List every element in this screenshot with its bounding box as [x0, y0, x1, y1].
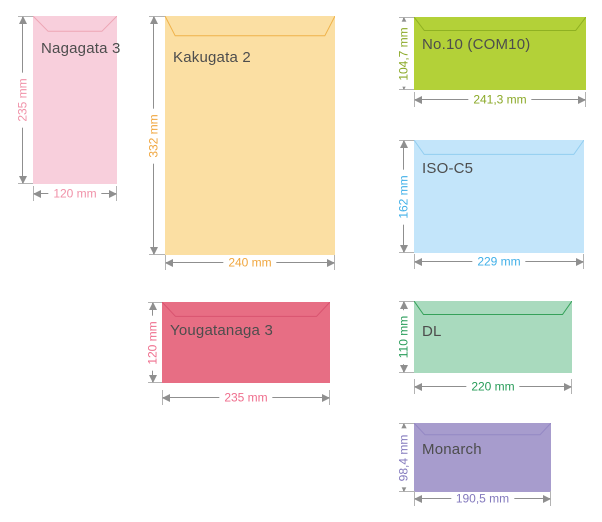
height-label: 235 mm — [16, 72, 29, 127]
flap-outline-icon — [165, 16, 335, 38]
envelope-name: ISO-C5 — [422, 160, 473, 177]
envelope-yougatanaga-3: Yougatanaga 3 — [162, 302, 330, 383]
arrow-left-icon — [414, 96, 422, 104]
envelope-size-diagram: { "diagram": { "subject": "Envelope size… — [0, 0, 602, 522]
envelope-iso-c5: ISO-C5 — [414, 140, 584, 253]
flap-outline-icon — [414, 140, 584, 156]
arrow-right-icon — [576, 258, 584, 266]
arrow-down-icon — [400, 365, 408, 373]
width-dimension-arrow: 240 mm — [165, 262, 335, 263]
width-label: 120 mm — [48, 187, 101, 200]
arrow-up-icon — [150, 16, 158, 24]
width-label: 220 mm — [466, 380, 519, 393]
height-label: 162 mm — [397, 169, 410, 224]
height-dimension-arrow: 120 mm — [152, 302, 153, 383]
envelope-kakugata-2: Kakugata 2 — [165, 16, 335, 255]
flap-outline-icon — [414, 301, 572, 316]
flap-outline-icon — [414, 17, 586, 32]
arrow-left-icon — [33, 190, 41, 198]
width-label: 241,3 mm — [468, 93, 531, 106]
arrow-left-icon — [414, 258, 422, 266]
flap-outline-icon — [414, 423, 551, 436]
height-dimension-arrow: 332 mm — [153, 16, 154, 255]
arrow-left-icon — [414, 383, 422, 391]
arrow-right-icon — [109, 190, 117, 198]
height-label: 332 mm — [147, 108, 160, 163]
envelope-name: Kakugata 2 — [173, 49, 251, 66]
height-dimension-arrow: 162 mm — [403, 140, 404, 253]
arrow-right-icon — [578, 96, 586, 104]
height-dimension-arrow: 98,4 mm — [403, 423, 404, 492]
arrow-left-icon — [162, 394, 170, 402]
envelope-nagagata-3: Nagagata 3 — [33, 16, 117, 184]
arrow-down-icon — [19, 176, 27, 184]
arrow-down-icon — [149, 375, 157, 383]
arrow-right-icon — [327, 259, 335, 267]
height-label: 98,4 mm — [397, 428, 410, 487]
arrow-left-icon — [165, 259, 173, 267]
width-label: 240 mm — [223, 256, 276, 269]
width-label: 190,5 mm — [451, 492, 514, 505]
arrow-down-icon — [150, 247, 158, 255]
flap-outline-icon — [33, 16, 117, 33]
envelope-name: DL — [422, 323, 442, 340]
height-label: 120 mm — [146, 315, 159, 370]
width-dimension-arrow: 120 mm — [33, 193, 117, 194]
arrow-up-icon — [149, 302, 157, 310]
width-dimension-arrow: 229 mm — [414, 261, 584, 262]
height-dimension-arrow: 110 mm — [403, 301, 404, 373]
width-dimension-arrow: 190,5 mm — [414, 498, 551, 499]
envelope-no10-com10: No.10 (COM10) — [414, 17, 586, 90]
width-label: 229 mm — [472, 255, 525, 268]
height-label: 104,7 mm — [397, 21, 410, 86]
width-dimension-arrow: 235 mm — [162, 397, 330, 398]
height-label: 110 mm — [397, 310, 410, 364]
envelope-monarch: Monarch — [414, 423, 551, 492]
height-dimension-arrow: 104,7 mm — [403, 17, 404, 90]
envelope-name: No.10 (COM10) — [422, 36, 530, 53]
width-label: 235 mm — [219, 391, 272, 404]
envelope-name: Nagagata 3 — [41, 40, 121, 57]
arrow-up-icon — [400, 140, 408, 148]
flap-outline-icon — [162, 302, 330, 318]
arrow-right-icon — [543, 495, 551, 503]
envelope-dl: DL — [414, 301, 572, 373]
height-dimension-arrow: 235 mm — [22, 16, 23, 184]
width-dimension-arrow: 220 mm — [414, 386, 572, 387]
arrow-right-icon — [322, 394, 330, 402]
arrow-left-icon — [414, 495, 422, 503]
arrow-up-icon — [19, 16, 27, 24]
envelope-name: Yougatanaga 3 — [170, 322, 273, 339]
envelope-name: Monarch — [422, 441, 482, 458]
width-dimension-arrow: 241,3 mm — [414, 99, 586, 100]
arrow-right-icon — [564, 383, 572, 391]
arrow-up-icon — [400, 301, 408, 309]
arrow-down-icon — [400, 245, 408, 253]
